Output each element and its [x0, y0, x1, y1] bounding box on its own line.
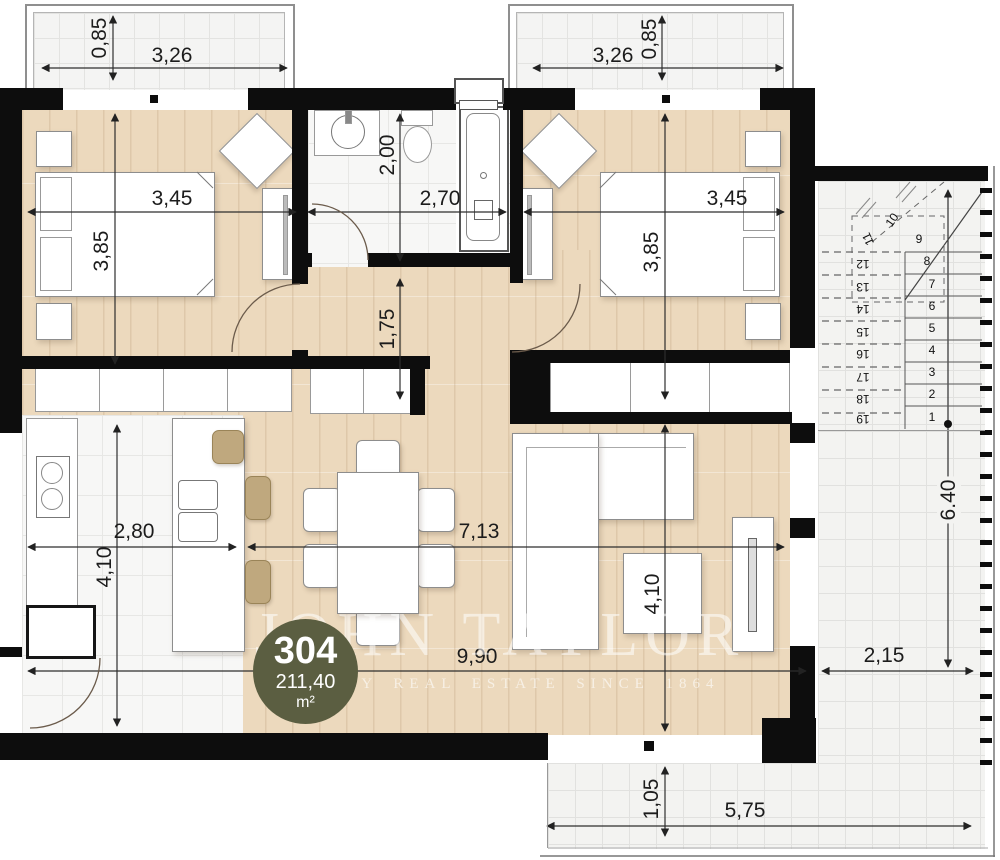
dining-chair	[303, 488, 341, 532]
sink-faucet	[345, 110, 352, 124]
window-connector	[662, 95, 670, 103]
desk	[262, 188, 294, 280]
wardrobe-cell	[228, 369, 291, 411]
bar-stool	[212, 430, 244, 464]
window-connector	[644, 741, 654, 751]
dim-living-width: 7,13	[459, 520, 500, 544]
stair-step-number: 7	[929, 277, 936, 291]
stair-step-number: 16	[856, 347, 869, 361]
floor-plan: 0,85 3,26 3,26 0,85 3,45 2,70 3,45 3,85 …	[0, 0, 1000, 860]
wall	[790, 518, 815, 538]
wall	[790, 423, 815, 443]
dim-kitchen-width: 2,80	[114, 520, 155, 544]
desk-chair	[283, 195, 288, 275]
dim-bedroom-left-width: 3,45	[152, 187, 193, 211]
nightstand	[745, 131, 781, 167]
dim-terrace-bottom-height: 1,05	[640, 779, 664, 820]
stair-step-number: 12	[856, 257, 869, 271]
wall	[510, 103, 523, 283]
wall	[22, 356, 300, 369]
stair-step-number: 8	[924, 254, 931, 268]
bar-stool	[245, 476, 271, 520]
nightstand	[745, 303, 781, 340]
wall	[248, 88, 456, 110]
terrace-bottom-floor	[548, 763, 985, 849]
watermark-tagline: LUXURY REAL ESTATE SINCE 1864	[0, 676, 1000, 693]
wall	[0, 95, 22, 433]
wardrobe-cell	[551, 363, 631, 413]
pillow	[40, 177, 72, 231]
wardrobe-cell	[36, 369, 100, 411]
wall	[523, 350, 790, 363]
kitchen-sink	[178, 512, 218, 542]
cooktop-burner	[41, 488, 63, 510]
wall	[790, 88, 815, 348]
dining-chair	[303, 544, 341, 588]
stair-step-number: 15	[856, 325, 869, 339]
dim-bedroom-right-height: 3,85	[640, 232, 664, 273]
wall	[292, 253, 312, 267]
pillow	[40, 237, 72, 291]
dim-kitchen-height: 4,10	[93, 547, 117, 588]
unit-area-unit: m²	[296, 694, 315, 712]
wardrobe-cell	[100, 369, 164, 411]
stair-step-number: 9	[916, 232, 923, 246]
stair-step-number: 13	[856, 280, 869, 294]
dim-balcony-left-depth: 0,85	[88, 18, 112, 59]
stair-step-number: 17	[856, 370, 869, 384]
wall	[410, 356, 425, 415]
toilet-tank	[401, 110, 433, 126]
dining-chair	[417, 544, 455, 588]
wardrobe-cell	[311, 369, 364, 413]
window-living-south	[548, 735, 762, 763]
wall	[510, 412, 815, 424]
wardrobe-cell	[164, 369, 228, 411]
stair-step-number: 19	[856, 412, 869, 426]
cooktop-burner	[41, 462, 63, 484]
dim-hallway-height: 1,75	[376, 309, 400, 350]
pillow	[743, 177, 775, 231]
wardrobe-left	[35, 368, 292, 412]
sofa-seam	[526, 447, 686, 448]
dim-bathroom-width: 2,70	[420, 187, 461, 211]
stair-step-number: 5	[929, 321, 936, 335]
stair-step-number: 1	[929, 410, 936, 424]
desk-chair	[527, 195, 532, 275]
wardrobe-cell	[364, 369, 416, 413]
bathtub-drain	[480, 172, 487, 179]
bathtub-faucet	[474, 200, 493, 220]
stair-step-number: 18	[856, 392, 869, 406]
stair-step-number: 6	[929, 299, 936, 313]
stair-step-number: 2	[929, 387, 936, 401]
wall	[815, 166, 988, 181]
stair-step-number: 4	[929, 343, 936, 357]
wardrobe-hall	[310, 368, 417, 414]
window-stairwell	[792, 348, 815, 423]
dim-terrace-bottom-width: 5,75	[725, 799, 766, 823]
dining-table	[337, 472, 419, 614]
desk	[521, 188, 553, 280]
dim-terrace-right-height: 6.40	[937, 477, 961, 524]
dining-chair	[417, 488, 455, 532]
unit-area-value: 211,40	[276, 670, 336, 694]
dim-bedroom-right-width: 3,45	[707, 187, 748, 211]
window-terrace-1	[792, 443, 815, 518]
nightstand	[36, 131, 72, 167]
watermark-brand: JOHN TAYLOR	[0, 600, 1000, 671]
wardrobe-cell	[710, 363, 789, 413]
wardrobe-right	[550, 362, 790, 414]
wall	[368, 253, 510, 267]
dim-bathroom-height: 2,00	[376, 135, 400, 176]
stair-step-number: 3	[929, 365, 936, 379]
unit-number: 304	[274, 632, 337, 670]
wall	[0, 733, 548, 760]
stair-step-number: 14	[856, 302, 869, 316]
nightstand	[36, 303, 72, 340]
kitchen-sink	[178, 480, 218, 510]
unit-badge: 304 211,40 m²	[253, 619, 358, 724]
duct-cap	[459, 100, 498, 110]
dim-bedroom-left-height: 3,85	[90, 231, 114, 272]
dim-balcony-right-depth: 0,85	[638, 19, 662, 60]
dim-balcony-left-width: 3,26	[152, 44, 193, 68]
toilet-bowl	[403, 126, 432, 163]
pillow	[743, 237, 775, 291]
wardrobe-cell	[631, 363, 711, 413]
window-connector	[150, 95, 158, 103]
bar-stool	[245, 560, 271, 604]
dim-balcony-right-width: 3,26	[593, 44, 634, 68]
